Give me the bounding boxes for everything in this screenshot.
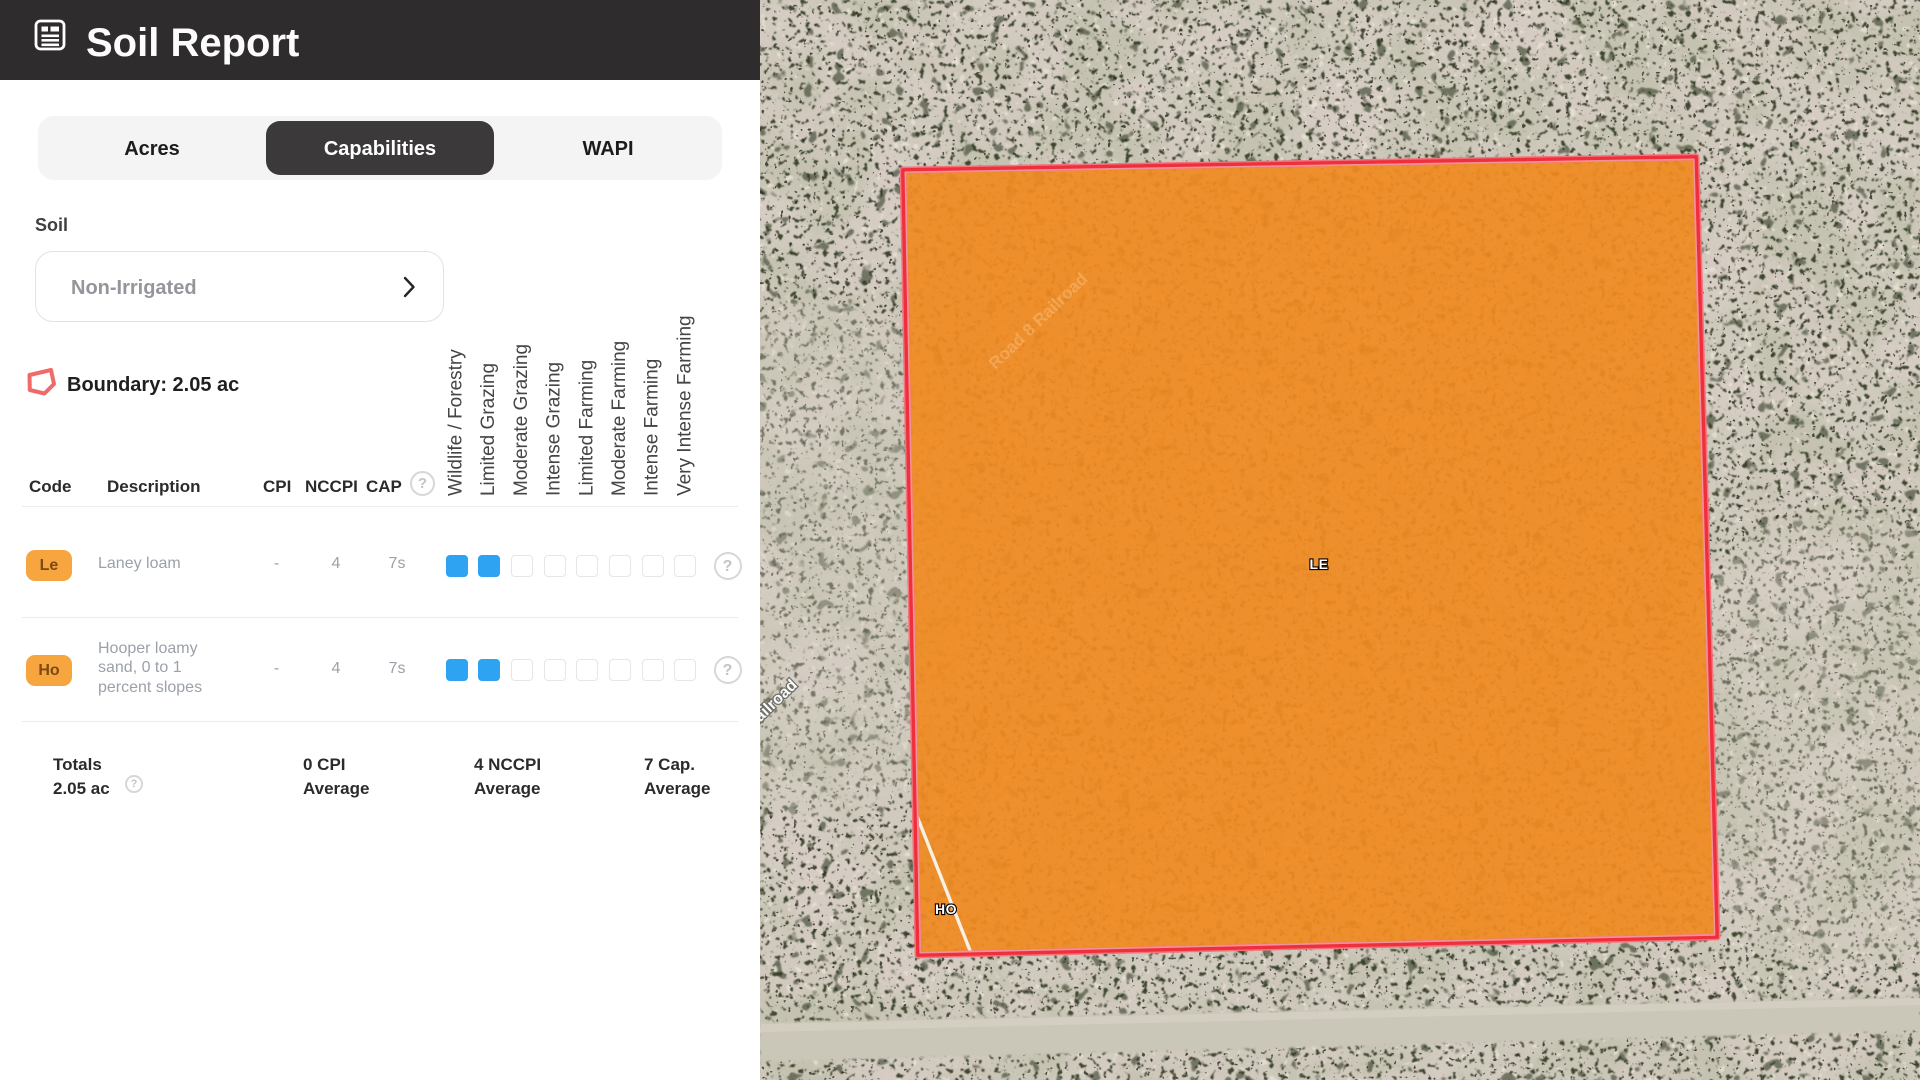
svg-text:Limited Grazing: Limited Grazing xyxy=(478,363,499,496)
svg-text:Intense Farming: Intense Farming xyxy=(642,359,663,496)
svg-text:Very Intense Farming: Very Intense Farming xyxy=(674,315,695,496)
svg-text:Intense Grazing: Intense Grazing xyxy=(544,362,565,496)
svg-text:Limited Farming: Limited Farming xyxy=(576,360,597,496)
svg-text:LE: LE xyxy=(1310,556,1329,572)
svg-text:Wildlife / Forestry: Wildlife / Forestry xyxy=(446,349,467,496)
svg-text:HO: HO xyxy=(935,901,957,917)
svg-text:Moderate Grazing: Moderate Grazing xyxy=(511,344,532,496)
svg-text:Moderate Farming: Moderate Farming xyxy=(609,341,630,496)
